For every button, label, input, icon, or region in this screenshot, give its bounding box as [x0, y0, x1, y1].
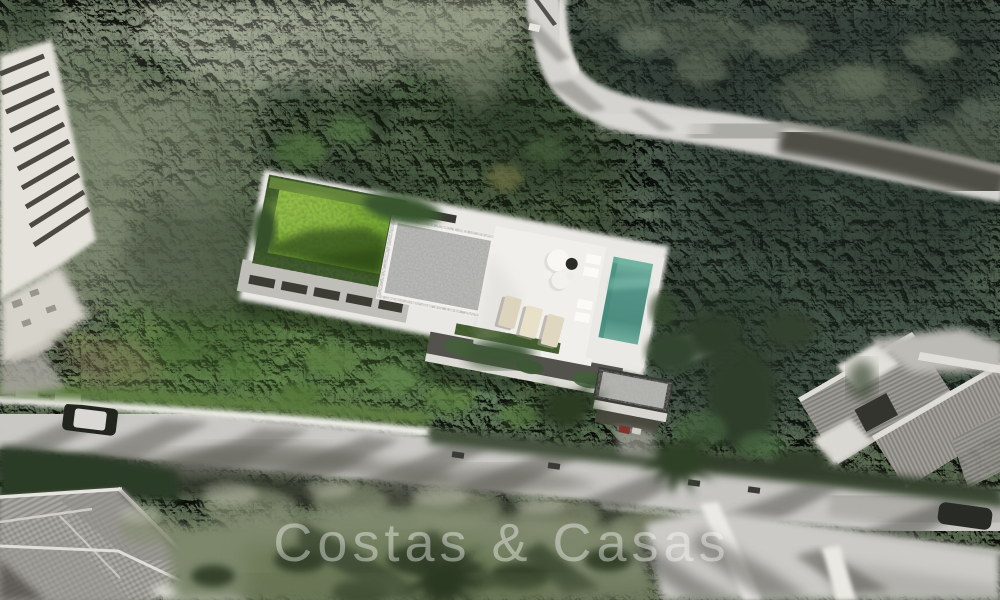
svg-text:Costas & Casas: Costas & Casas — [273, 513, 730, 573]
